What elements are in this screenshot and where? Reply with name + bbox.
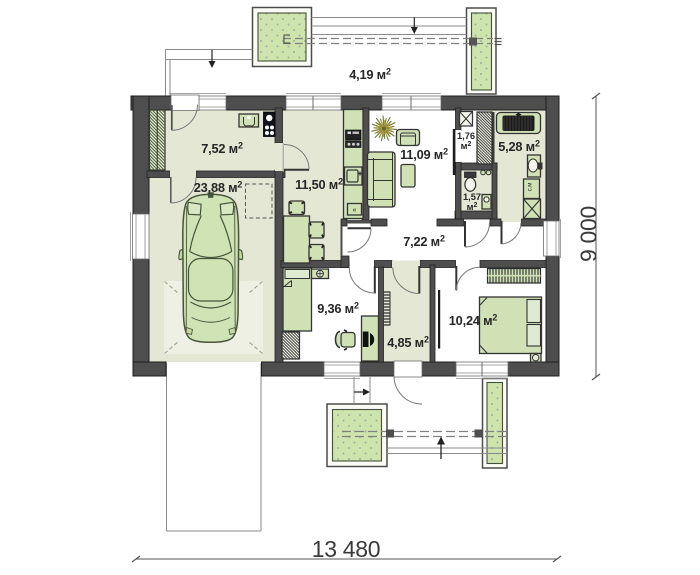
svg-text:11,50 м2: 11,50 м2 [295, 177, 343, 193]
svg-text:7,52 м2: 7,52 м2 [201, 141, 243, 157]
svg-text:9,36 м2: 9,36 м2 [317, 301, 359, 317]
svg-text:9 000: 9 000 [576, 206, 602, 262]
svg-text:1,76: 1,76 [457, 131, 475, 141]
svg-text:«: « [353, 207, 357, 214]
svg-text:4,85 м2: 4,85 м2 [387, 335, 429, 351]
svg-text:4,19 м2: 4,19 м2 [349, 67, 391, 83]
svg-text:5,28 м2: 5,28 м2 [498, 139, 540, 155]
svg-text:11,09 м2: 11,09 м2 [400, 147, 448, 163]
svg-text:1,57: 1,57 [463, 192, 481, 202]
svg-text:7,22 м2: 7,22 м2 [403, 234, 445, 250]
svg-text:10,24 м2: 10,24 м2 [449, 313, 498, 329]
svg-text:с.м: с.м [528, 183, 534, 192]
svg-text:23,88 м2: 23,88 м2 [194, 180, 243, 196]
svg-text:13 480: 13 480 [312, 536, 381, 562]
